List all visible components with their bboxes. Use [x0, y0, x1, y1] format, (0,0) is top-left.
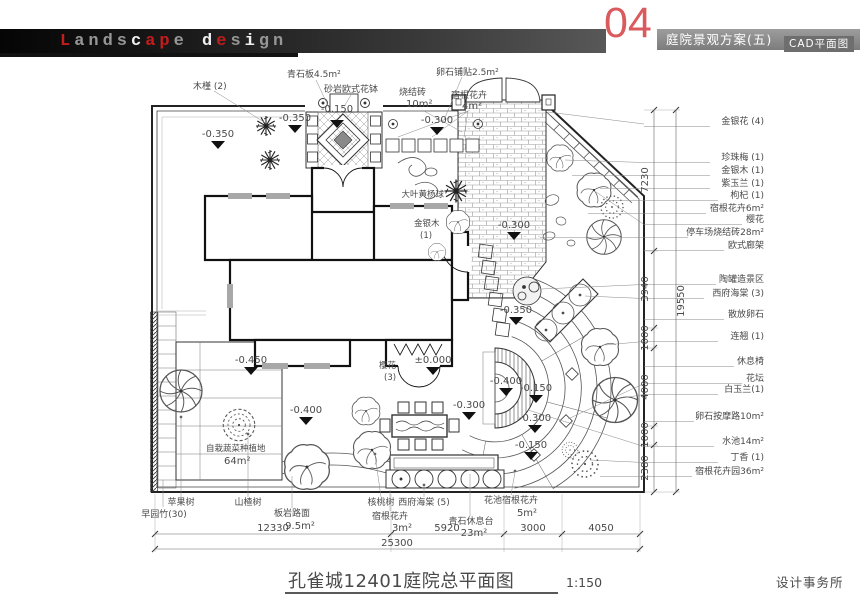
plant-label: 宿根花卉: [372, 510, 408, 522]
elevation-label: -0.150: [321, 104, 353, 115]
flower-pot-row: [386, 470, 504, 488]
zone-label: 花坛: [746, 372, 764, 384]
drawing-title: 孔雀城12401庭院总平面图: [288, 571, 514, 592]
forsythia-symbol: [582, 329, 619, 366]
dim-total-label: 25300: [381, 538, 413, 549]
page-number: 04: [604, 0, 652, 46]
site-plan-drawing: -0.350 -0.350 -0.150 -0.300 -0.300 -0.35…: [0, 0, 860, 608]
honeysuckle-tree-symbol: [429, 244, 446, 261]
dining-table-set: [380, 402, 459, 450]
plant-count-label: (3): [384, 373, 396, 383]
plant-label: 樱花: [379, 360, 397, 371]
dim-label: 12330: [257, 523, 289, 534]
material-label: 砂岩欧式花钵: [324, 83, 378, 95]
hibiscus-shrub-symbol: [260, 150, 280, 170]
dim-label: 3940: [640, 276, 651, 301]
plant-label: 樱花: [746, 213, 764, 225]
dim-label: 1000: [640, 325, 651, 350]
plant-label: 珍珠梅 (1): [721, 151, 764, 163]
header-bar-gray: 庭院景观方案(五) CAD平面图: [657, 29, 860, 50]
pottery-jar-feature: [513, 277, 541, 305]
zone-label: 陶罐造景区: [719, 273, 764, 285]
plant-label: 连翘 (1): [730, 330, 764, 342]
zone-label: 停车场烧结砖28m²: [686, 226, 764, 238]
plant-label: 大叶黄杨球: [401, 189, 444, 200]
bottom-annotations: 苹果树 早园竹(30) 山楂树 板岩路面 9.5m² 核桃树 宿根花卉 3m² …: [141, 494, 538, 539]
shrub-symbol: [601, 196, 623, 218]
elevation-label: -0.150: [520, 383, 552, 394]
plant-label: 宿根花卉6m²: [710, 202, 764, 214]
dim-label: 2380: [640, 455, 651, 480]
plant-label: 丁香 (1): [730, 452, 764, 463]
cherry-blossom-symbol: [587, 220, 622, 255]
dim-label: 4000: [640, 374, 651, 399]
plant-label: 宿根花卉: [451, 89, 487, 101]
plant-label: 西府海棠 (3): [712, 287, 764, 299]
area-label: 23m²: [461, 528, 487, 539]
dim-label: 7230: [640, 167, 651, 192]
right-annotations: 金银花 (4) 珍珠梅 (1) 金银木 (1) 紫玉兰 (1) 枸杞 (1) 宿…: [686, 115, 764, 477]
bamboo-strip: [158, 312, 176, 488]
dim-label: 3000: [520, 523, 545, 534]
elevation-label: -0.300: [453, 400, 485, 411]
boxwood-ball-symbol: [446, 210, 469, 233]
area-label: 4m²: [462, 101, 482, 112]
plant-label: 早园竹(30): [141, 508, 186, 520]
elevation-label: -0.300: [421, 115, 453, 126]
plant-label: 白玉兰(1): [724, 383, 764, 395]
logo-landscape-design: Landscape design: [60, 32, 287, 51]
patio: [380, 402, 504, 488]
elevation-label: ±0.000: [414, 355, 451, 366]
structure-label: 欧式廊架: [728, 239, 764, 251]
material-label: 烧结砖: [399, 86, 426, 98]
scattered-pebbles: [542, 193, 575, 246]
elevation-label: -0.300: [498, 220, 530, 231]
studio-name: 设计事务所: [776, 575, 844, 590]
plant-label: 苹果树: [167, 496, 194, 508]
hawthorn-tree-symbol: [223, 409, 255, 441]
elevation-label: -0.300: [519, 413, 551, 424]
elevation-label: -0.400: [490, 376, 522, 387]
magnolia-symbol: [593, 378, 638, 423]
dim-total-label: 19550: [676, 285, 687, 317]
plant-label: 山楂树: [234, 496, 261, 508]
apple-tree-symbol: [160, 370, 202, 412]
material-label: 青石板4.5m²: [287, 68, 341, 80]
title-block: 孔雀城12401庭院总平面图 1:150 设计事务所: [285, 571, 844, 593]
tree-symbol: [354, 432, 391, 469]
plant-label: 木槿 (2): [193, 80, 227, 92]
material-label: 板岩路面: [274, 507, 310, 519]
plant-label: 金银木 (1): [721, 164, 764, 176]
furniture-label: 休息椅: [737, 355, 764, 367]
material-label: 卵石按摩路10m²: [695, 410, 764, 422]
zone-label: 宿根花卉园36m²: [695, 465, 764, 477]
zone-label: 自栽蔬菜种植地: [206, 443, 266, 454]
cherry-tree-symbol: [352, 397, 380, 425]
area-label: 3m²: [392, 523, 412, 534]
plant-label: 核桃树: [367, 496, 394, 508]
tree-symbol: [547, 145, 573, 171]
walnut-tree-symbol: [285, 445, 330, 490]
scheme-title: 庭院景观方案(五): [666, 29, 772, 50]
area-label: 10m²: [406, 99, 432, 110]
elevation-label: -0.150: [515, 440, 547, 451]
material-label: 散放卵石: [728, 308, 764, 320]
cad-plan-badge: CAD平面图: [784, 36, 854, 52]
dim-label: 1000: [640, 422, 651, 447]
material-label: 卵石铺贴2.5m²: [436, 66, 499, 78]
water-label: 水池14m²: [722, 435, 764, 447]
gate-post: [542, 95, 555, 110]
tree-symbol: [577, 173, 611, 207]
elevation-label: -0.350: [202, 129, 234, 140]
lilac-shrub-symbol: [572, 451, 598, 477]
area-label: 5m²: [517, 508, 537, 519]
dim-label: 5920: [434, 523, 459, 534]
plant-label: 花池宿根花卉: [484, 494, 538, 506]
dim-label: 4050: [588, 523, 613, 534]
rest-platform: [390, 455, 498, 471]
plant-label: 西府海棠 (5): [398, 496, 450, 508]
elevation-label: -0.350: [500, 305, 532, 316]
plant-label: 金银花 (4): [721, 115, 764, 127]
elevation-label: -0.350: [279, 113, 311, 124]
elevation-label: -0.450: [235, 355, 267, 366]
elevation-label: -0.400: [290, 405, 322, 416]
drawing-scale: 1:150: [566, 575, 602, 590]
area-label: 64m²: [224, 456, 250, 467]
area-label: 9.5m²: [285, 521, 315, 532]
plant-label: 紫玉兰 (1): [721, 177, 764, 189]
page: -0.350 -0.350 -0.150 -0.300 -0.300 -0.35…: [0, 0, 860, 608]
plant-count-label: (1): [420, 231, 432, 241]
plant-label: 金银木: [414, 218, 440, 229]
plant-label: 枸杞 (1): [730, 189, 764, 201]
